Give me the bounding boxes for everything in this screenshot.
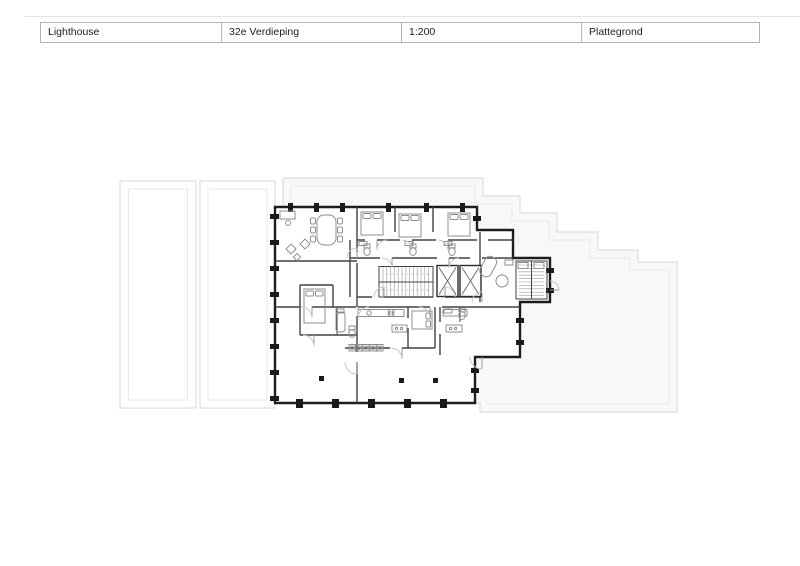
drawing-sheet: Lighthouse 32e Verdieping 1:200 Plattegr… (0, 0, 800, 566)
terrace-left-2-outline (200, 181, 275, 408)
floor-plan-svg (0, 0, 800, 566)
terrace-left-1-outline (120, 181, 196, 408)
floor-plan-drawing (0, 0, 800, 566)
